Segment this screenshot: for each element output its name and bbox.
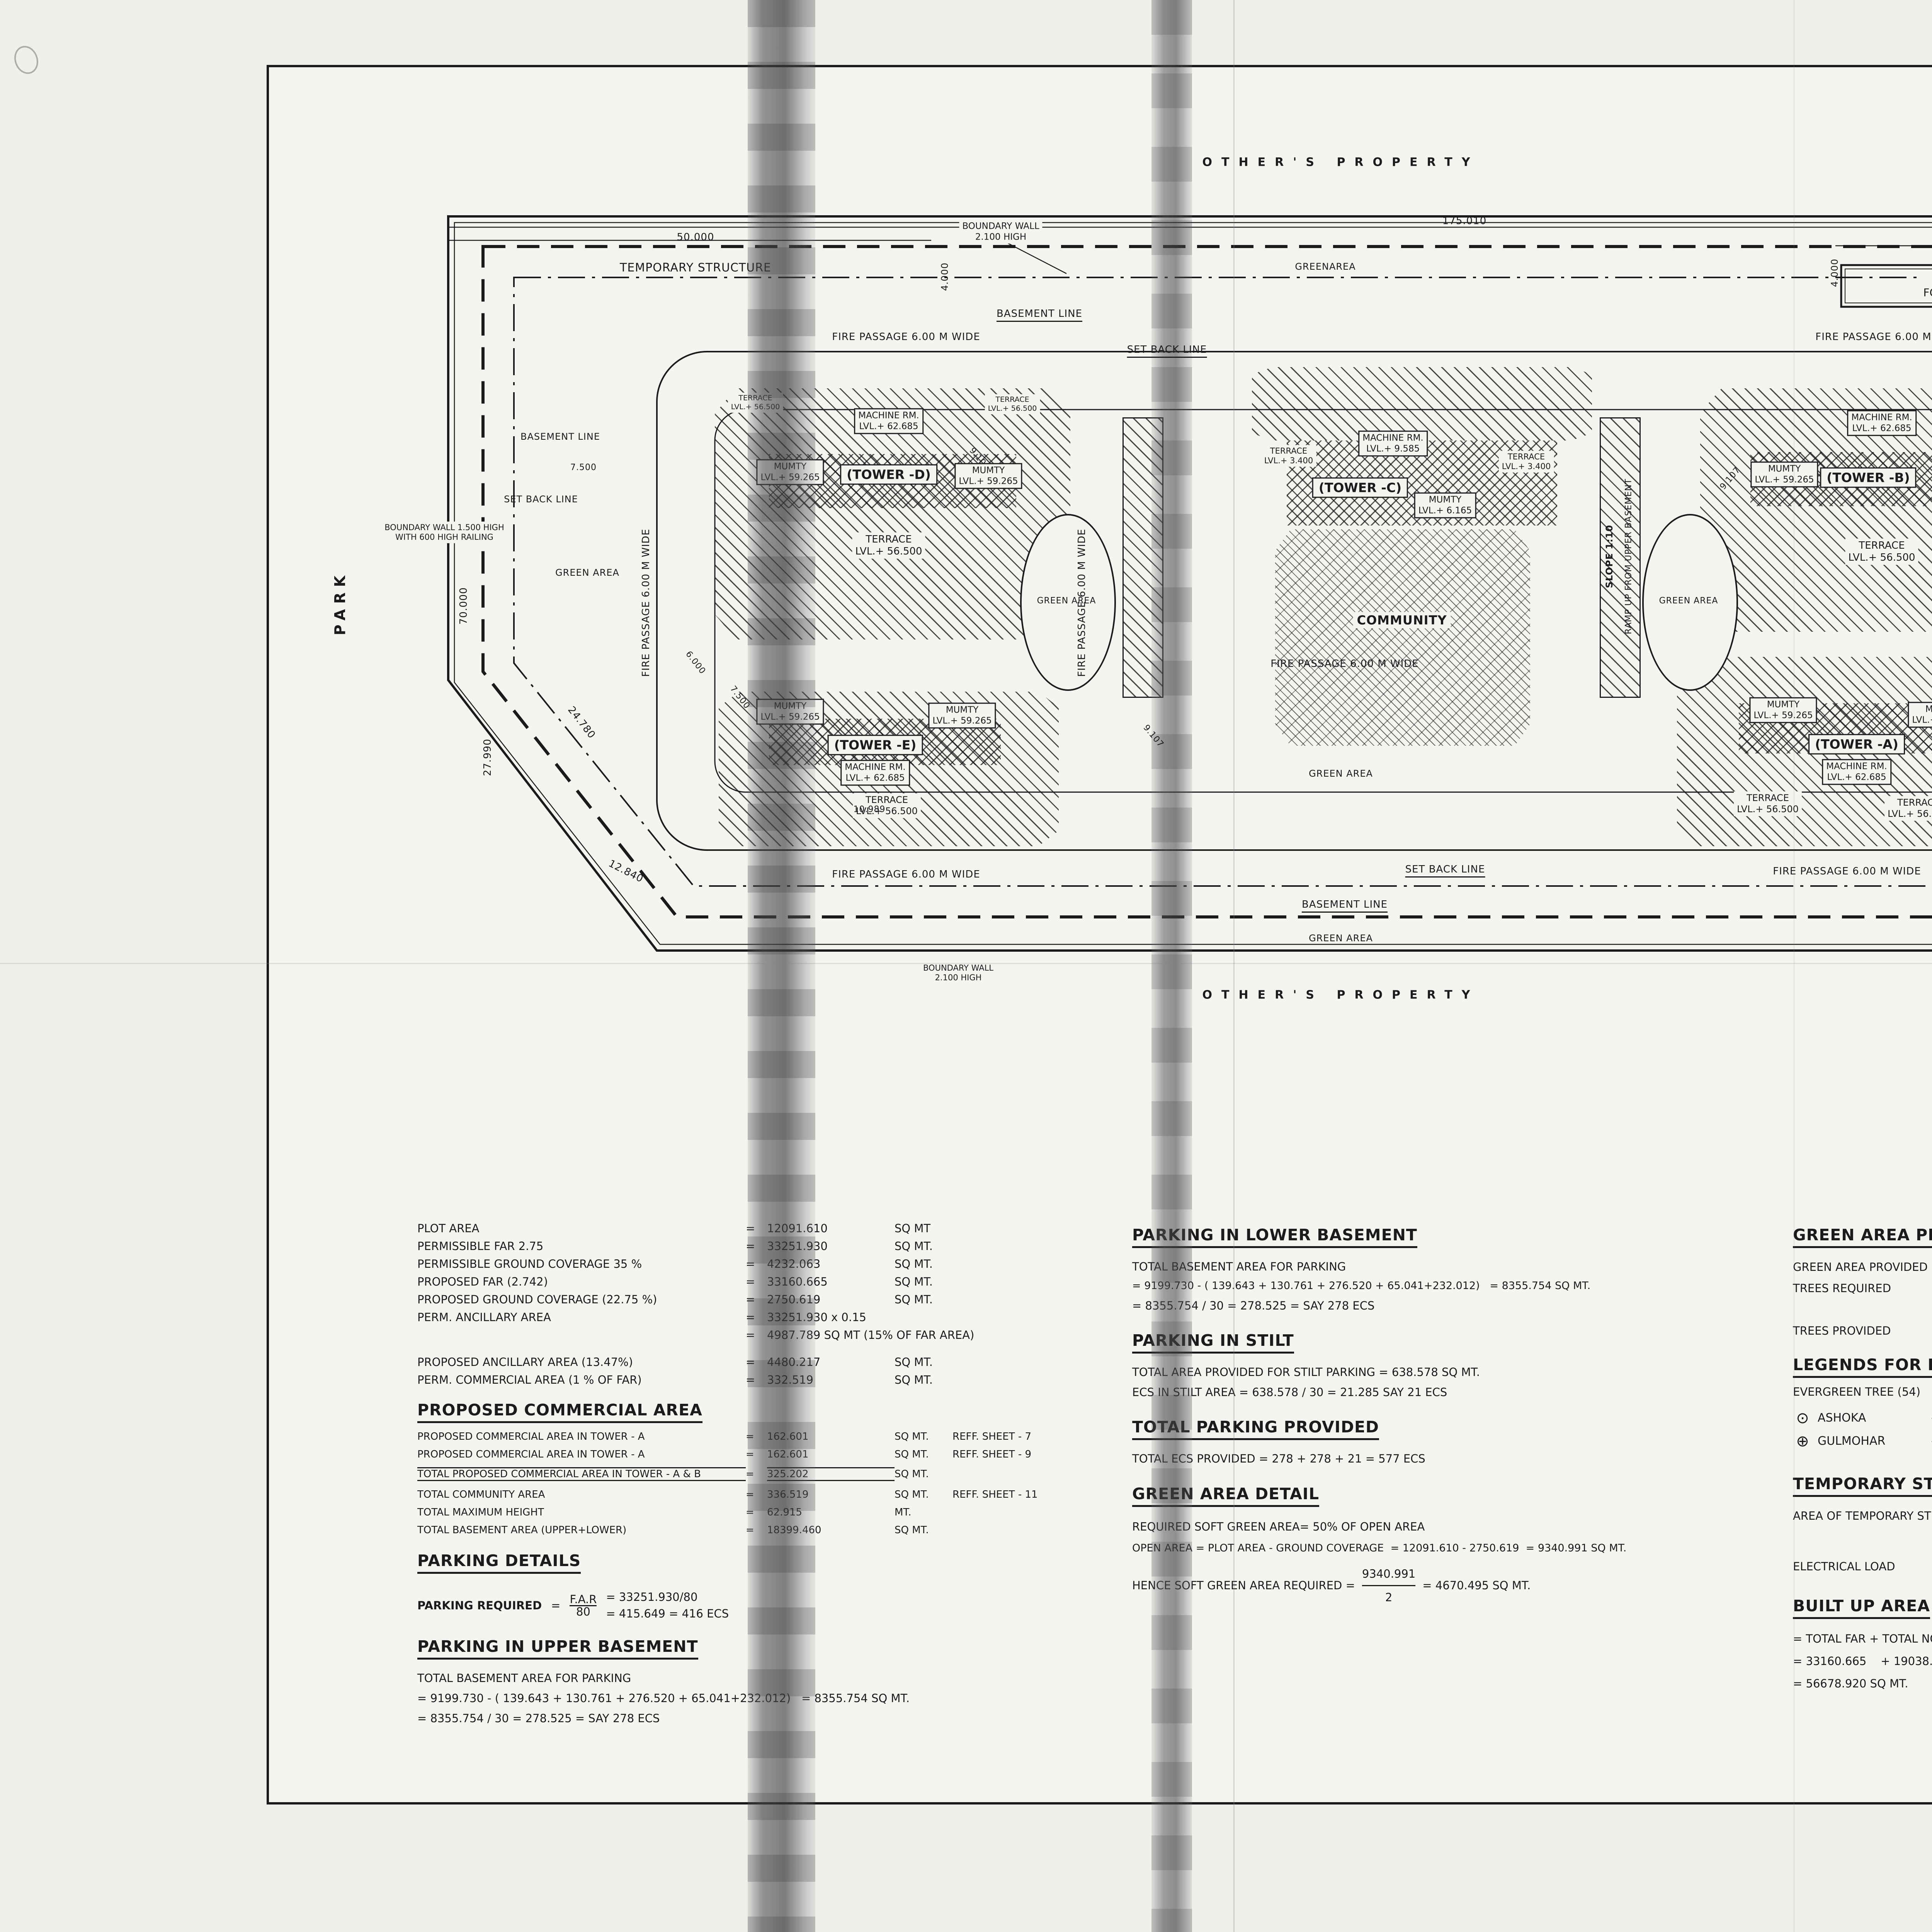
tower-c-terrace-r: TERRACELVL.+ 3.400 bbox=[1499, 451, 1554, 473]
tower-a-label: (TOWER -A) bbox=[1808, 734, 1905, 755]
tower-a-terrace-l: TERRACELVL.+ 56.500 bbox=[1734, 791, 1802, 816]
boundary-wall-rail-left: BOUNDARY WALL 1.500 HIGHWITH 600 HIGH RA… bbox=[381, 522, 507, 543]
tower-c-wing bbox=[1252, 367, 1592, 440]
green-area-oval-right-label: GREEN AREA bbox=[1659, 596, 1718, 606]
tower-a-machine: MACHINE RM.LVL.+ 62.685 bbox=[1822, 759, 1891, 785]
tower-d-terrace-label: TERRACELVL.+ 56.500 bbox=[852, 532, 925, 559]
tower-a-mumty-r: MUMTYLVL.+ 59.265 bbox=[1908, 702, 1932, 728]
tower-a-mumty-l: MUMTYLVL.+ 59.265 bbox=[1749, 697, 1817, 723]
tower-d-label: (TOWER -D) bbox=[840, 464, 937, 485]
tower-d-terrace-chip1: TERRACELVL.+ 56.500 bbox=[728, 393, 783, 413]
tower-c-terrace-l: TERRACELVL.+ 3.400 bbox=[1261, 445, 1316, 467]
tower-e-label: (TOWER -E) bbox=[828, 735, 923, 755]
tower-e-mumty-r: MUMTYLVL.+ 59.265 bbox=[928, 702, 996, 728]
tower-d-machine: MACHINE RM.LVL.+ 62.685 bbox=[854, 408, 923, 434]
ramp-right bbox=[1600, 417, 1641, 698]
tower-e-machine: MACHINE RM.LVL.+ 62.685 bbox=[840, 760, 910, 786]
corner-mark bbox=[10, 43, 42, 77]
boundary-wall-bottom: BOUNDARY WALL2.100 HIGH bbox=[920, 962, 997, 984]
tower-d-mumty-r: MUMTYLVL.+ 59.265 bbox=[954, 463, 1022, 489]
tower-b-mumty-l: MUMTYLVL.+ 59.265 bbox=[1750, 461, 1818, 487]
community-block bbox=[1275, 529, 1530, 746]
tower-b-terrace-label: TERRACELVL.+ 56.500 bbox=[1845, 539, 1918, 565]
tower-c-machine: MACHINE RM.LVL.+ 9.585 bbox=[1358, 430, 1428, 456]
boundary-wall-top: BOUNDARY WALL2.100 HIGH bbox=[959, 220, 1042, 243]
tower-b-label: (TOWER -B) bbox=[1820, 468, 1916, 488]
community-label: COMMUNITY bbox=[1353, 612, 1451, 628]
setback-line-top: SET BACK LINE bbox=[1127, 344, 1207, 358]
dim-10989: 10.989 bbox=[854, 805, 886, 815]
tower-a-terrace-r: TERRACELVL.+ 56.500 bbox=[1884, 796, 1932, 821]
tower-d-mumty-l: MUMTYLVL.+ 59.265 bbox=[756, 459, 824, 485]
tower-d-terrace-chip2: TERRACELVL.+ 56.500 bbox=[985, 394, 1040, 414]
tower-e-mumty-l: MUMTYLVL.+ 59.265 bbox=[756, 699, 824, 724]
tower-b-machine: MACHINE RM.LVL.+ 62.685 bbox=[1847, 410, 1917, 436]
ramp-left bbox=[1122, 417, 1163, 698]
fire-passage-mid-vert: FIRE PASSAGE 6.00 M WIDE bbox=[1076, 529, 1088, 677]
tower-c-label: (TOWER -C) bbox=[1312, 478, 1408, 498]
tower-c-mumty: MUMTYLVL.+ 6.165 bbox=[1414, 492, 1476, 518]
site-plan-linework bbox=[267, 65, 1932, 1800]
platform-label: PLATFORMFOR OPEN TRANSFORMER bbox=[1920, 272, 1932, 300]
